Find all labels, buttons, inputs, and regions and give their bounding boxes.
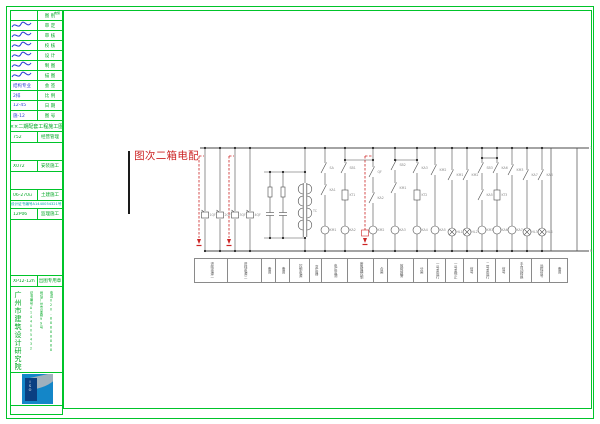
svg-text:KM1: KM1 xyxy=(330,228,337,232)
table-cell: 一号泵停止 xyxy=(446,258,464,283)
table-cell: 信号 xyxy=(464,258,478,283)
svg-text:KA1: KA1 xyxy=(330,188,336,192)
table-cell: 断路器控制 xyxy=(348,258,374,283)
svg-text:HL3: HL3 xyxy=(532,230,538,234)
svg-text:1QF: 1QF xyxy=(210,213,217,217)
table-cell-label: 分闸 xyxy=(419,267,422,274)
table-cell: 进线电源二 xyxy=(228,258,262,283)
schematic-svg: 1N1QF2QF3QF4QFTCSAKA1KM1SB1KT1KA2QFKA2KM… xyxy=(0,0,600,424)
svg-text:SA: SA xyxy=(330,166,335,170)
table-cell: 二号泵运行 xyxy=(478,258,496,283)
table-cell-label: 信号 xyxy=(469,267,472,274)
svg-text:KM1: KM1 xyxy=(400,186,407,190)
drawing-sheet: 图 别电施审 定审 核校 核设 计制 图描 图结构专业会 签2排比 例12-45… xyxy=(0,0,600,424)
function-table: 进线电源一进线电源二备用备用控制电源变压器电压监测断路器控制合闸故障报警分闸一号… xyxy=(194,258,568,283)
table-cell: 故障报警 xyxy=(388,258,414,283)
svg-text:KA5: KA5 xyxy=(440,228,446,232)
table-cell-label: 二号泵运行 xyxy=(485,262,488,279)
svg-text:SB1: SB1 xyxy=(350,166,356,170)
table-cell-label: 信号 xyxy=(501,267,504,274)
svg-text:SB2: SB2 xyxy=(400,163,406,167)
svg-text:TC: TC xyxy=(312,209,318,213)
svg-text:SB3: SB3 xyxy=(487,166,493,170)
svg-text:KA7: KA7 xyxy=(517,228,523,232)
svg-text:KM2: KM2 xyxy=(472,173,479,177)
svg-text:KT3: KT3 xyxy=(502,193,508,197)
table-cell-label: 远程信号 xyxy=(539,264,542,278)
svg-text:N: N xyxy=(590,249,593,253)
svg-text:KM3: KM3 xyxy=(517,168,524,172)
svg-text:KM3: KM3 xyxy=(487,228,494,232)
table-cell-label: 断路器控制 xyxy=(359,262,362,279)
svg-text:KM2: KM2 xyxy=(378,228,385,232)
table-cell-label: 备用 xyxy=(557,267,560,274)
svg-text:KA3: KA3 xyxy=(422,166,428,170)
svg-text:KT2: KT2 xyxy=(422,193,428,197)
svg-text:KA2: KA2 xyxy=(378,196,384,200)
svg-text:KA4: KA4 xyxy=(422,228,428,232)
table-cell: 备用 xyxy=(262,258,276,283)
table-cell: 分闸 xyxy=(414,258,428,283)
table-cell-label: 控制电源 xyxy=(298,264,301,278)
svg-text:4QF: 4QF xyxy=(255,213,262,217)
svg-text:3QF: 3QF xyxy=(240,213,247,217)
table-cell: 手自动转换 xyxy=(510,258,532,283)
svg-text:KA3: KA3 xyxy=(400,228,406,232)
table-cell-label: 一号泵运行 xyxy=(435,262,438,279)
svg-text:KT1: KT1 xyxy=(350,193,356,197)
table-cell-label: 电压监测 xyxy=(333,264,336,278)
table-cell-label: 进线电源二 xyxy=(243,262,246,279)
table-cell: 远程信号 xyxy=(532,258,550,283)
table-cell-label: 变压器 xyxy=(314,265,317,275)
table-cell-label: 一号泵停止 xyxy=(453,262,456,279)
svg-text:HL4: HL4 xyxy=(547,230,553,234)
svg-text:HL1: HL1 xyxy=(457,230,463,234)
svg-text:2QF: 2QF xyxy=(225,213,232,217)
svg-text:KA6: KA6 xyxy=(502,166,508,170)
svg-text:KA5: KA5 xyxy=(487,193,493,197)
svg-text:HL2: HL2 xyxy=(472,230,478,234)
svg-text:1: 1 xyxy=(590,146,592,150)
table-cell-label: 手自动转换 xyxy=(519,262,522,279)
svg-text:KA7: KA7 xyxy=(532,173,538,177)
svg-text:QF: QF xyxy=(378,170,383,174)
svg-text:KA6: KA6 xyxy=(502,228,508,232)
table-cell: 控制电源 xyxy=(290,258,310,283)
table-cell: 变压器 xyxy=(310,258,322,283)
table-cell: 备用 xyxy=(550,258,568,283)
table-cell-label: 合闸 xyxy=(379,267,382,274)
table-cell: 备用 xyxy=(276,258,290,283)
table-cell-label: 备用 xyxy=(281,267,284,274)
table-cell: 一号泵运行 xyxy=(428,258,446,283)
table-cell-label: 故障报警 xyxy=(399,264,402,278)
svg-text:KA2: KA2 xyxy=(350,228,356,232)
svg-text:KM2: KM2 xyxy=(440,168,447,172)
table-cell: 合闸 xyxy=(374,258,388,283)
svg-text:KA8: KA8 xyxy=(547,173,553,177)
table-cell-label: 备用 xyxy=(267,267,270,274)
table-cell: 信号 xyxy=(496,258,510,283)
table-cell-label: 进线电源一 xyxy=(209,262,212,279)
table-cell: 电压监测 xyxy=(322,258,348,283)
svg-text:KM1: KM1 xyxy=(457,173,464,177)
table-cell: 进线电源一 xyxy=(194,258,228,283)
